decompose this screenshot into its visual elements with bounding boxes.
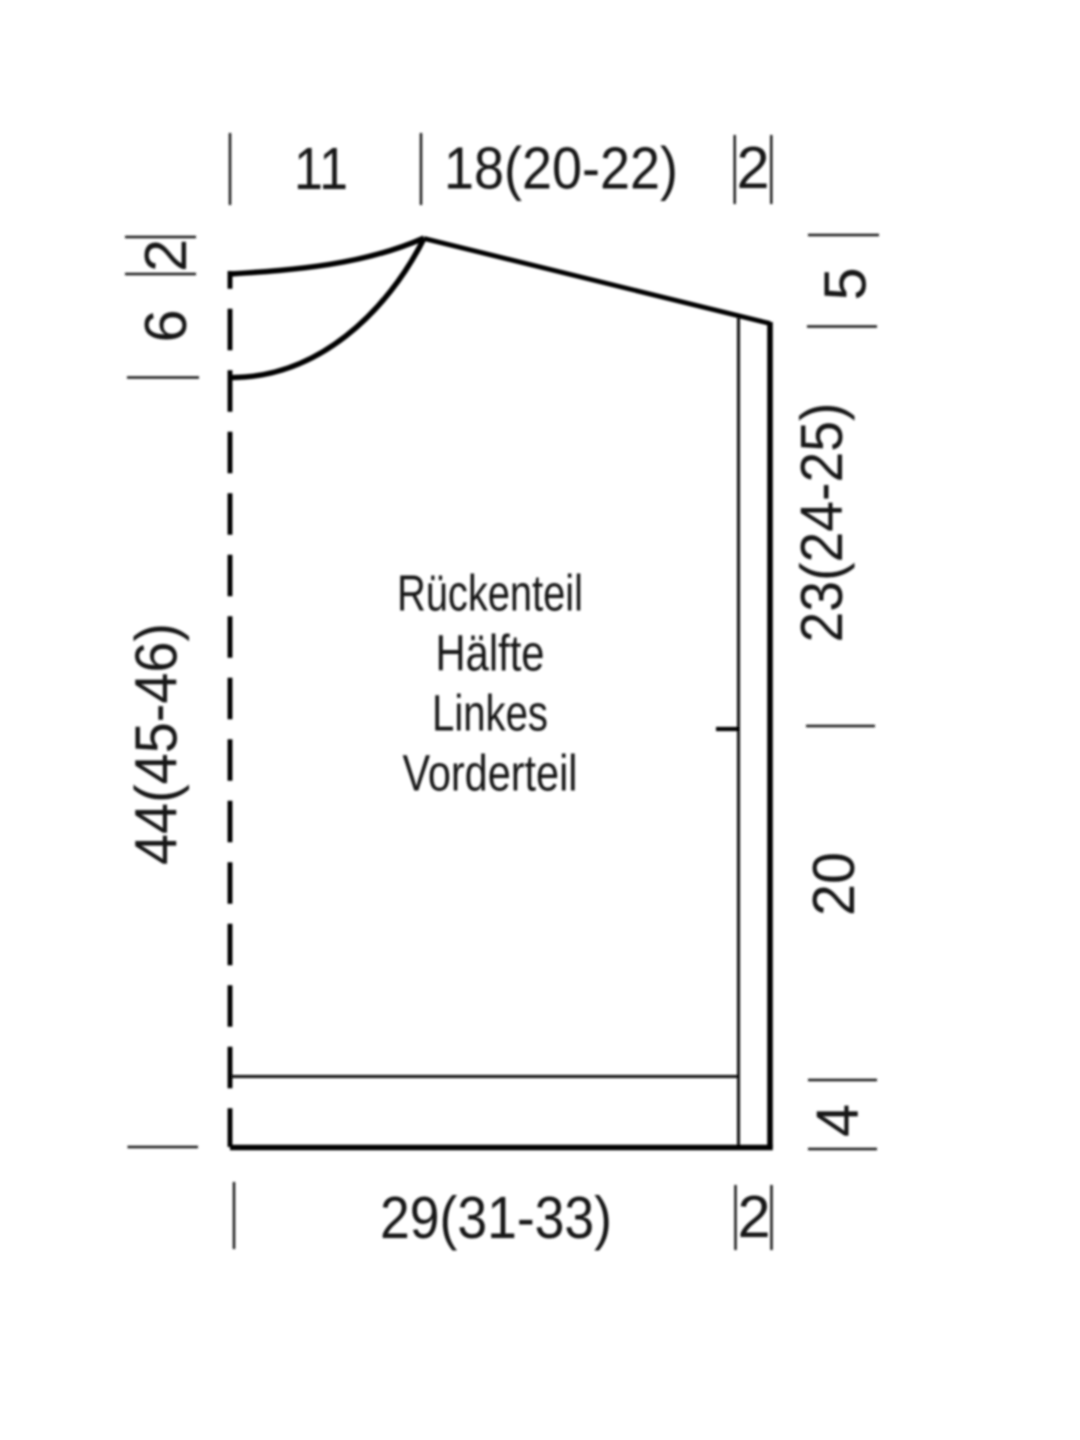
svg-text:6: 6 xyxy=(132,309,199,342)
svg-text:29(31-33): 29(31-33) xyxy=(380,1184,612,1251)
svg-text:2: 2 xyxy=(132,239,199,272)
svg-text:Hälfte: Hälfte xyxy=(436,625,545,682)
svg-text:4: 4 xyxy=(804,1104,871,1137)
svg-text:23(24-25): 23(24-25) xyxy=(788,403,855,643)
svg-text:18(20-22): 18(20-22) xyxy=(444,135,678,202)
svg-text:20: 20 xyxy=(800,852,867,916)
svg-text:Rückenteil: Rückenteil xyxy=(397,565,583,622)
svg-text:2: 2 xyxy=(736,134,769,201)
svg-text:11: 11 xyxy=(294,135,348,202)
svg-text:Linkes: Linkes xyxy=(432,685,548,742)
svg-text:5: 5 xyxy=(812,267,879,300)
svg-text:2: 2 xyxy=(737,1183,770,1250)
svg-text:44(45-46): 44(45-46) xyxy=(123,623,190,865)
svg-text:Vorderteil: Vorderteil xyxy=(403,745,578,802)
